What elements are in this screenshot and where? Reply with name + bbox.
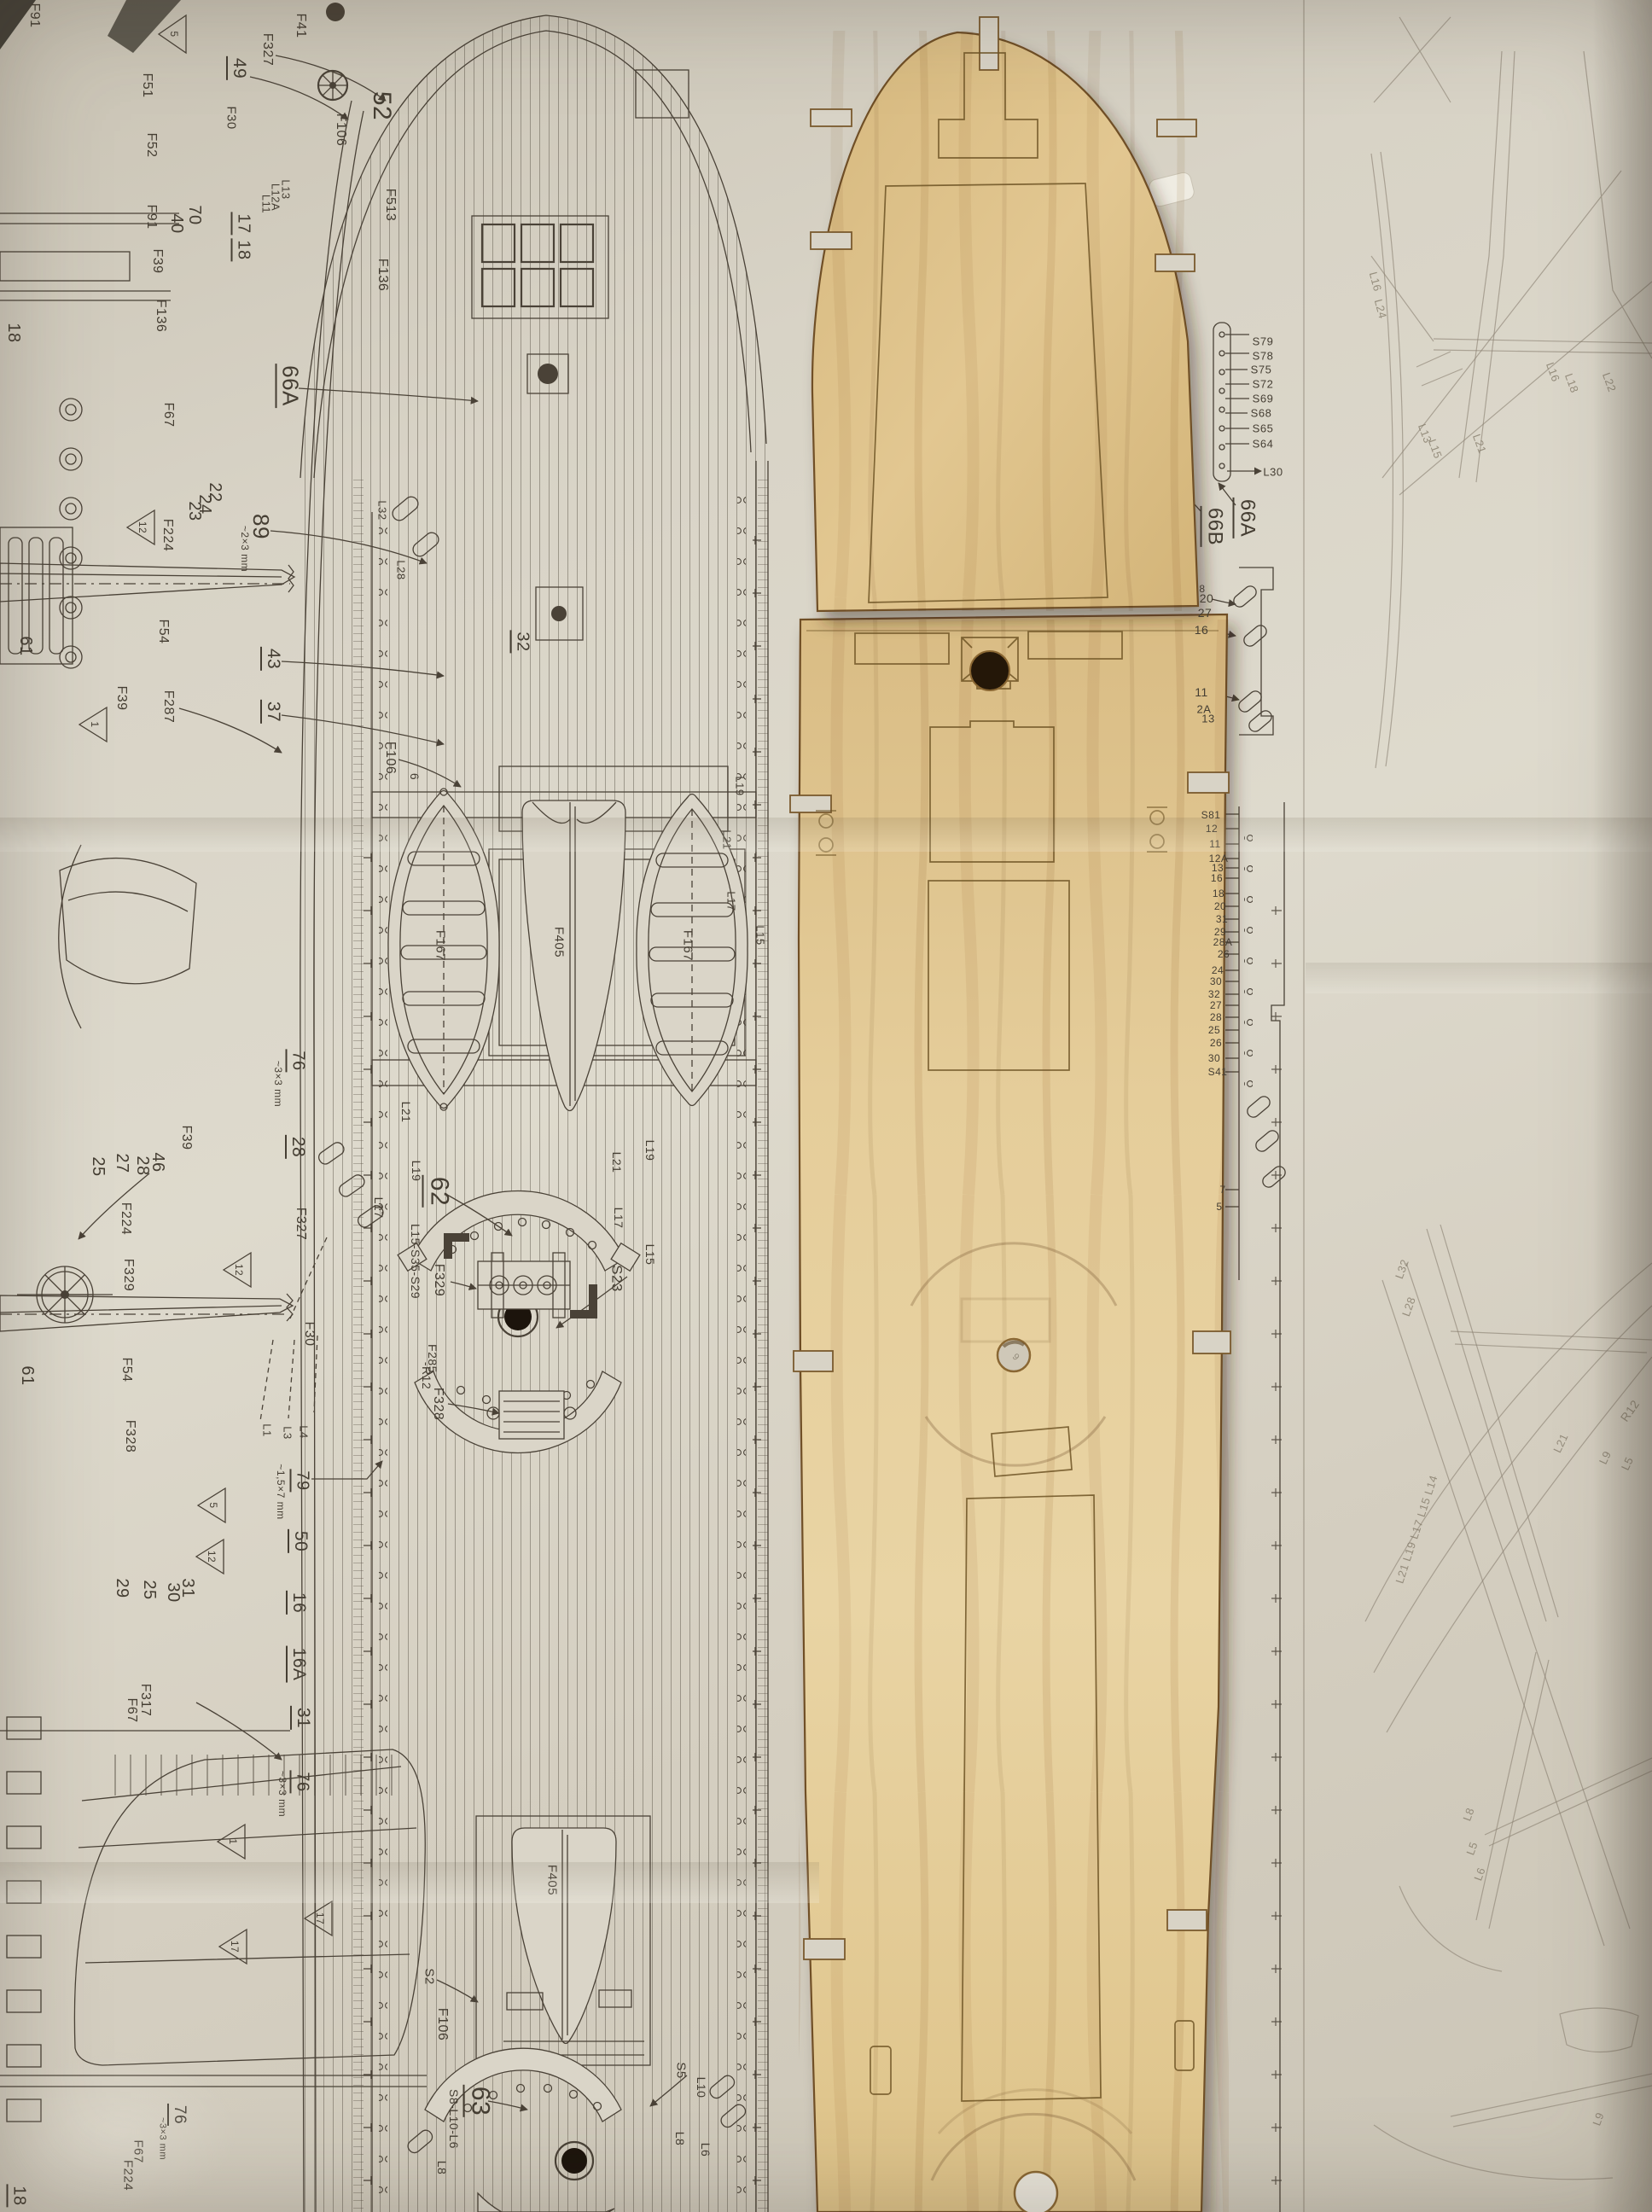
plan-label: S8-L10-L6 [448, 2089, 460, 2149]
plan-label: L15 [644, 1244, 656, 1266]
plan-label: F136 [375, 259, 389, 291]
plan-label: L6 [700, 2143, 712, 2157]
plan-label: 46 [149, 1152, 166, 1172]
plan-label: 52 [369, 91, 394, 120]
plan-label: S41 [1208, 1067, 1228, 1077]
plan-label: L15 [1427, 438, 1444, 460]
plan-label: 37 [260, 700, 282, 724]
plan-label: 61 [19, 1365, 36, 1385]
plan-label: L1 [262, 1423, 273, 1436]
plan-label: F327 [260, 33, 274, 66]
plan-label: L21 L19 L17 L15 L14 [1393, 1474, 1439, 1585]
plan-label: 50 [288, 1529, 310, 1553]
plan-label: F39 [114, 685, 128, 710]
plan-label: S81 [1201, 810, 1221, 820]
plan-label: ~3×3 mm [273, 1061, 283, 1107]
plan-label: F405 [546, 1865, 559, 1895]
plan-label: ~3×3 mm [277, 1771, 288, 1817]
plan-label: F51 [140, 73, 154, 97]
plan-label: S5 [675, 2062, 688, 2078]
plan-label: L5 [1464, 1841, 1480, 1857]
plan-label: S2 [423, 1968, 436, 1984]
plan-label: 11 [1195, 686, 1208, 698]
plan-label: 32 [510, 630, 532, 653]
plan-label: 43 [260, 647, 282, 671]
plan-label: F30 [302, 1321, 316, 1346]
plan-label: 11 [1209, 839, 1220, 849]
plan-label: F30 [225, 106, 238, 129]
plan-label: F167 [682, 930, 695, 961]
plan-label: F91 [27, 3, 41, 27]
plan-label: 79 [290, 1469, 311, 1492]
plan-label: 1 [228, 1838, 238, 1844]
plan-label: 6 [409, 773, 421, 780]
plan-label: F54 [119, 1357, 133, 1382]
plan-label: 30 [1210, 976, 1222, 987]
plan-label: L10 [695, 2077, 707, 2098]
plan-label: S78 [1253, 351, 1274, 362]
plan-label: 16A [286, 1646, 308, 1683]
plan-label: L21 [1471, 433, 1488, 455]
plan-label: ~3×3 mm [158, 2117, 167, 2160]
plan-label: L21 [1551, 1432, 1570, 1455]
plan-label: 25 [141, 1580, 158, 1599]
plan-label: L30 [1263, 467, 1283, 478]
plan-label: 28 [285, 1135, 307, 1159]
plan-label: -R12 [421, 1362, 433, 1389]
plan-label: L17 [613, 1208, 625, 1229]
plan-label: 23 [186, 501, 203, 521]
plan-label: 28 [134, 1155, 151, 1175]
plan-label: F327 [294, 1208, 307, 1240]
plan-label: 66B [1201, 506, 1225, 547]
plan-label: 26 [1210, 1038, 1222, 1048]
plan-label: 13 [1201, 713, 1214, 725]
plan-label: L8 [1461, 1807, 1476, 1823]
plan-label: 20 [1214, 901, 1226, 911]
plan-label: L19 [410, 1161, 422, 1182]
plan-label: 31 [1216, 914, 1228, 924]
plan-label: 18 [231, 238, 253, 261]
photo-ship-model-plan-with-plywood-deck: F91F41F32749F3052F106F51F52F513L13L12AL1… [0, 0, 1652, 2212]
plan-label: F317 [138, 1684, 152, 1716]
plan-label: 27 [1210, 1000, 1222, 1010]
plan-label: F67 [125, 1697, 138, 1722]
plan-label: L19 [644, 1140, 656, 1161]
plan-label: F39 [179, 1125, 193, 1150]
plan-label: F54 [156, 619, 170, 643]
plan-label: L17 [373, 1197, 385, 1219]
plan-label: L16 [1544, 361, 1562, 383]
plan-label: 61 [17, 636, 34, 655]
plan-label: ~2×3 mm [240, 526, 250, 572]
plan-label: 12 [234, 1264, 244, 1276]
plan-label: L28 [1400, 1295, 1417, 1318]
plan-label: F224 [122, 2160, 135, 2191]
plan-label: 31 [290, 1706, 312, 1730]
plan-label: 17 [230, 1941, 240, 1953]
plan-label: 28A [1213, 937, 1233, 947]
plan-label: 27 [113, 1153, 131, 1173]
plan-label: L9 [1591, 2111, 1606, 2128]
plan-label: 18 [7, 2184, 28, 2207]
plan-label: F106 [334, 114, 347, 146]
plan-label: S64 [1253, 439, 1274, 450]
plan-label: L28 [396, 560, 407, 579]
plan-label: 70 [186, 205, 203, 224]
plan-labels: F91F41F32749F3052F106F51F52F513L13L12AL1… [0, 0, 1652, 2212]
plan-label: S72 [1253, 379, 1274, 390]
plan-label: 5 [169, 31, 179, 37]
plan-label: L21 [400, 1102, 412, 1123]
plan-label: 29 [113, 1578, 131, 1598]
plan-label: F39 [150, 248, 164, 273]
plan-label: R12 [1618, 1398, 1641, 1423]
plan-label: 12 [206, 1551, 217, 1563]
plan-label: 20 [1200, 592, 1214, 604]
plan-label: 1 [90, 721, 100, 727]
plan-label: 16 [286, 1591, 308, 1615]
plan-label: F91 [144, 204, 158, 229]
plan-label: 16 [1195, 624, 1209, 636]
plan-label: 28 [1210, 1012, 1222, 1022]
plan-label: 66A [276, 364, 302, 408]
plan-label: 76 [290, 1770, 311, 1793]
plan-label: 9 [1010, 1353, 1021, 1363]
plan-label: F224 [160, 519, 174, 551]
plan-label: 18 [1213, 888, 1224, 899]
plan-label: 17 [231, 212, 253, 235]
plan-label: L8 [436, 2161, 448, 2175]
plan-label: L5 [1620, 1455, 1635, 1472]
plan-label: 89 [250, 514, 272, 539]
plan-label: L15 [755, 925, 766, 945]
plan-label: 30 [1208, 1053, 1220, 1063]
plan-label: L32 [377, 500, 388, 520]
plan-label: L17 [726, 891, 737, 911]
plan-label: 16 [1211, 873, 1223, 883]
plan-label: F328 [431, 1388, 445, 1420]
plan-label: L19 [735, 776, 746, 795]
plan-label: 76 [167, 2104, 188, 2126]
plan-label: S68 [1251, 408, 1272, 419]
plan-label: F287 [161, 690, 175, 723]
plan-label: L21 [611, 1152, 623, 1173]
plan-label: 63 [463, 2085, 493, 2117]
plan-label: 32 [1208, 989, 1220, 999]
plan-label: F106 [435, 2008, 449, 2040]
plan-label: F106 [383, 742, 397, 774]
plan-label: ~1,5×7 mm [276, 1464, 286, 1519]
plan-label: F52 [144, 132, 158, 157]
plan-label: 27 [1198, 607, 1213, 619]
plan-label: L18 [1563, 372, 1580, 394]
plan-label: L8 [674, 2132, 686, 2146]
plan-label: 30 [165, 1582, 182, 1602]
plan-label: 25 [1208, 1025, 1220, 1035]
plan-label: L32 [1393, 1258, 1411, 1280]
plan-label: 62 [422, 1175, 452, 1208]
plan-label: 7 [1219, 1185, 1225, 1195]
plan-label: S69 [1253, 393, 1274, 405]
plan-label: F329 [121, 1259, 135, 1291]
plan-label: 12 [137, 521, 148, 533]
plan-label: L9 [1597, 1449, 1613, 1466]
plan-label: F167 [434, 930, 447, 961]
plan-label: L24 [1373, 298, 1389, 320]
plan-label: L21 [722, 829, 733, 849]
plan-label: 66A [1233, 498, 1258, 538]
plan-label: L16 [1368, 271, 1384, 293]
plan-label: 40 [168, 213, 185, 233]
plan-label: F328 [123, 1420, 137, 1452]
plan-label: S65 [1253, 423, 1274, 434]
plan-label: S23 [610, 1265, 625, 1292]
plan-label: 25 [90, 1156, 107, 1176]
plan-label: 5 [1216, 1202, 1222, 1212]
plan-label: 12 [1206, 824, 1218, 834]
plan-label: L3 [282, 1426, 294, 1439]
plan-label: S79 [1253, 336, 1274, 347]
plan-label: L11 [261, 195, 272, 213]
plan-label: 5 [208, 1502, 218, 1508]
plan-label: 76 [286, 1049, 307, 1072]
plan-label: L6 [1472, 1866, 1487, 1883]
plan-label: L22 [1601, 371, 1618, 393]
plan-label: F405 [553, 927, 566, 958]
plan-label: F513 [383, 189, 397, 221]
plan-label: L15-S35-S29 [410, 1224, 422, 1299]
plan-label: F67 [161, 402, 175, 427]
plan-label: 17 [315, 1912, 325, 1924]
plan-label: F329 [432, 1264, 445, 1296]
plan-label: F41 [294, 13, 307, 38]
plan-label: 18 [5, 323, 22, 342]
plan-label: 24 [1212, 965, 1224, 975]
plan-label: L4 [299, 1425, 310, 1438]
plan-label: 26 [1218, 949, 1230, 959]
plan-label: F224 [119, 1202, 132, 1235]
plan-label: F136 [154, 300, 167, 332]
plan-label: 49 [226, 56, 248, 80]
plan-label: S75 [1251, 364, 1272, 375]
